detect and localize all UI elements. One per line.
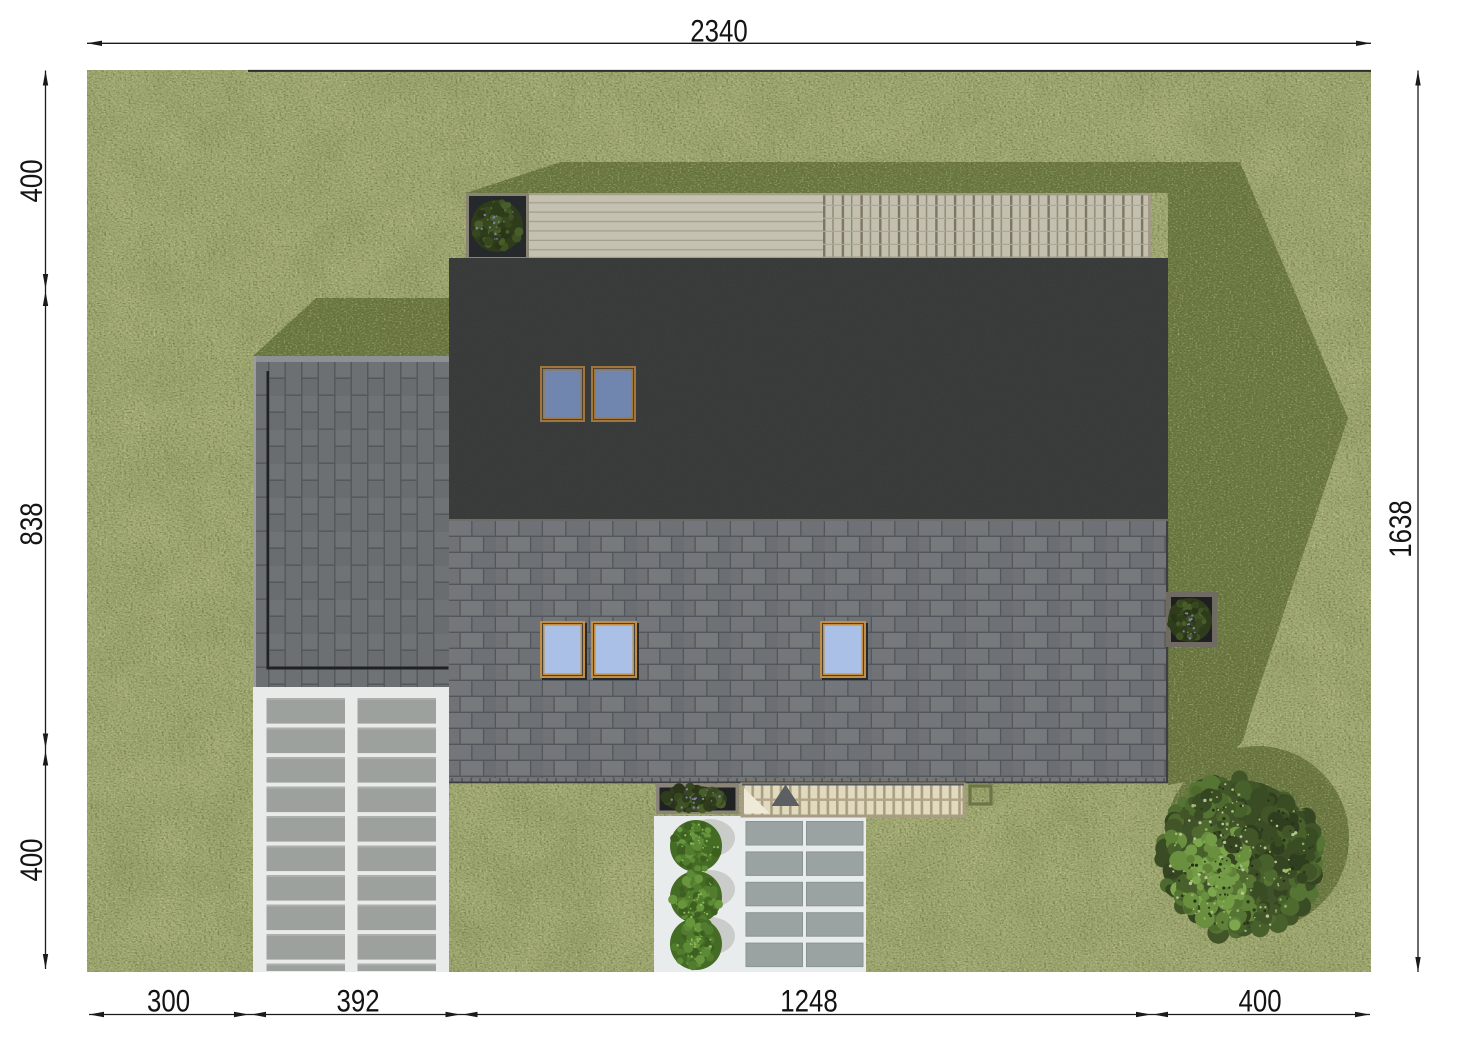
svg-text:400: 400	[15, 159, 50, 202]
svg-text:1638: 1638	[1384, 500, 1419, 557]
svg-text:300: 300	[147, 984, 190, 1019]
svg-text:838: 838	[15, 502, 50, 545]
svg-text:2340: 2340	[690, 14, 747, 49]
svg-text:1248: 1248	[780, 984, 837, 1019]
svg-text:400: 400	[15, 838, 50, 881]
svg-text:392: 392	[336, 984, 379, 1019]
svg-text:400: 400	[1238, 984, 1281, 1019]
